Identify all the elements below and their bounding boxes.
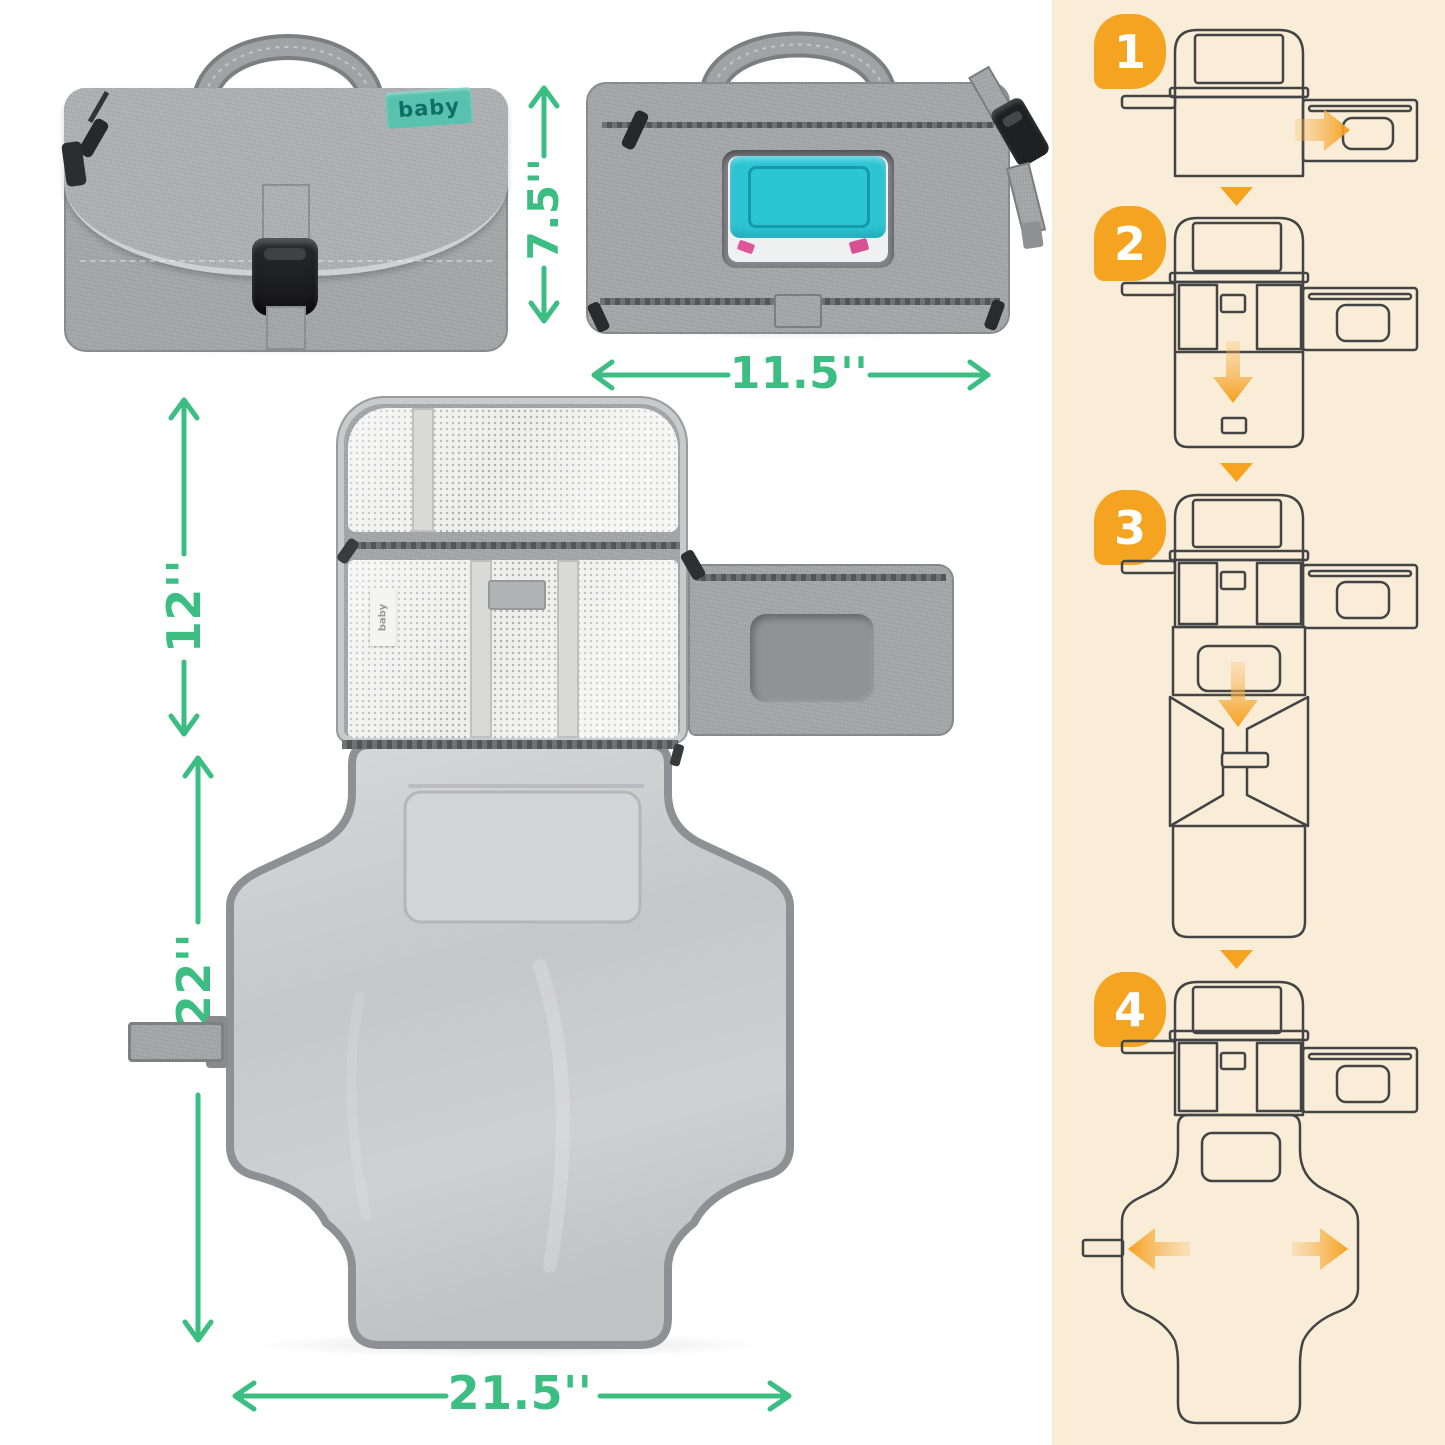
mesh-pocket-top: [348, 408, 678, 532]
buckle-strap-bottom: [266, 306, 306, 350]
organizer-flap: baby: [336, 396, 688, 744]
step-3-diagram: [1122, 495, 1417, 937]
pad-hanging-loop: [128, 1022, 224, 1062]
brand-tag-label: baby: [397, 94, 460, 122]
care-label: baby: [370, 588, 396, 646]
mesh-strap-right: [557, 560, 579, 738]
pad-junction-zipper: [342, 740, 678, 749]
step-connector-1-icon: [1220, 187, 1253, 206]
fold-right-arrow-2-icon: [1292, 1228, 1348, 1270]
wipes-print-right: [849, 238, 869, 254]
changing-pad-surface: [210, 736, 800, 1356]
wipes-window: [722, 150, 894, 268]
folding-steps-diagram: [1052, 0, 1445, 1445]
step-4-diagram: [1083, 982, 1417, 1423]
brand-tag: baby: [385, 87, 473, 129]
step-connector-3-icon: [1220, 950, 1253, 969]
wipes-lid-ridge: [748, 166, 870, 228]
hanging-loop-tab: [774, 294, 822, 328]
folded-bag-back-view: [560, 0, 1060, 360]
wipes-print-left: [737, 240, 755, 255]
wipes-pouch: [688, 564, 954, 736]
folded-bag-front-view: baby: [0, 0, 520, 360]
wipes-lid: [730, 156, 886, 238]
wipes-pack: [728, 156, 888, 262]
dimension-pad-width-label: 21.5'': [420, 1368, 620, 1418]
buckle-slot: [264, 248, 306, 260]
side-release-buckle: [252, 238, 318, 316]
step-2-diagram: [1122, 218, 1417, 447]
dimension-flap-height-label: 12'': [161, 551, 207, 661]
buckle-strap-top: [262, 184, 310, 244]
fold-down-arrow-icon: [1213, 341, 1253, 403]
organizer-zipper: [346, 542, 680, 549]
strap-buckle-slot: [1001, 110, 1023, 129]
mesh-strap-top: [412, 408, 434, 532]
fold-left-arrow-icon: [1128, 1228, 1190, 1270]
top-zipper: [602, 122, 994, 128]
product-infographic: baby: [0, 0, 1445, 1445]
strap-slider: [1020, 221, 1043, 250]
care-label-text: baby: [378, 603, 389, 631]
dimension-folded-width-label: 11.5'': [624, 348, 974, 398]
step-connector-2-icon: [1220, 463, 1253, 482]
pouch-zipper: [696, 574, 946, 581]
pouch-dispenser-window: [750, 614, 874, 702]
step-1-diagram: [1122, 30, 1417, 176]
dimension-folded-height-label: 7.5'': [520, 148, 566, 270]
velcro-tab: [488, 580, 546, 610]
pad-pillow: [405, 792, 640, 922]
